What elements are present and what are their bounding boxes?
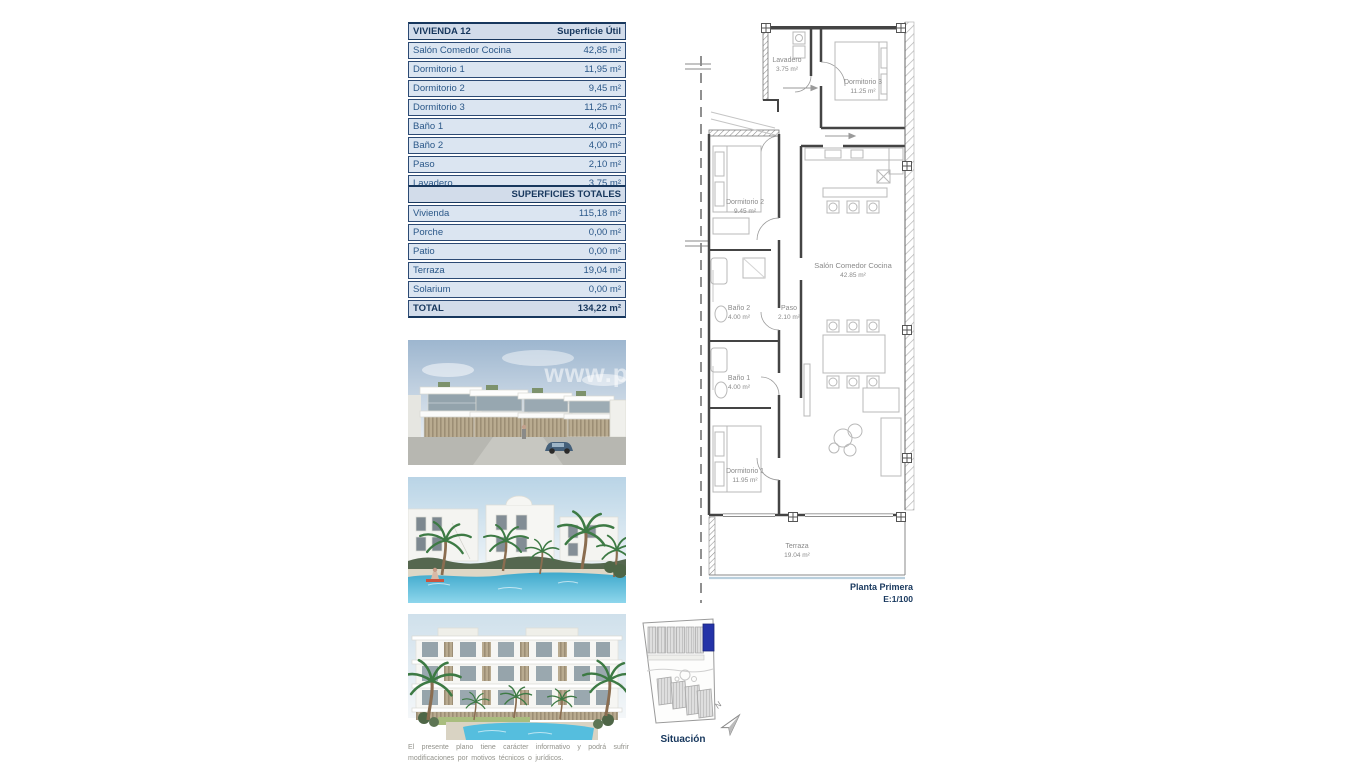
row-label: Dormitorio 1 — [408, 61, 538, 78]
room-label-dormitorio-2: Dormitorio 2 9.45 m² — [726, 199, 764, 215]
table-row: Baño 24,00 m² — [408, 137, 626, 154]
svg-text:E:1/100: E:1/100 — [883, 594, 913, 604]
row-value: 9,45 m² — [538, 80, 626, 97]
row-label: Salón Comedor Cocina — [408, 42, 538, 59]
svg-text:42.85 m²: 42.85 m² — [840, 272, 866, 279]
row-value: 0,00 m² — [511, 243, 626, 260]
exterior-render-photo-1: www.p — [408, 340, 626, 465]
floorplan-drawing: Lavadero 3.75 m² Dormitorio 3 11.25 m² D… — [683, 18, 919, 614]
svg-text:9.45 m²: 9.45 m² — [734, 208, 757, 215]
svg-text:Baño 1: Baño 1 — [728, 375, 750, 382]
svg-text:Dormitorio 3: Dormitorio 3 — [844, 79, 882, 86]
svg-text:19.04 m²: 19.04 m² — [784, 552, 810, 559]
disclaimer-text: El presente plano tiene carácter informa… — [408, 743, 629, 764]
table-row: Patio0,00 m² — [408, 243, 626, 260]
svg-text:Dormitorio 1: Dormitorio 1 — [726, 468, 764, 475]
vivienda-areas-table: VIVIENDA 12 Superficie Útil Salón Comedo… — [408, 20, 626, 194]
row-value: 4,00 m² — [538, 118, 626, 135]
row-value: 2,10 m² — [538, 156, 626, 173]
table-row: Dormitorio 111,95 m² — [408, 61, 626, 78]
svg-text:4.00 m²: 4.00 m² — [728, 314, 751, 321]
table-header-value: Superficie Útil — [538, 22, 626, 40]
row-value: 11,25 m² — [538, 99, 626, 116]
render-building-view — [408, 614, 626, 740]
svg-text:11.25 m²: 11.25 m² — [850, 88, 876, 95]
row-label: Baño 2 — [408, 137, 538, 154]
totales-table: SUPERFICIES TOTALES Vivienda115,18 m² Po… — [408, 183, 626, 320]
table-row: Dormitorio 29,45 m² — [408, 80, 626, 97]
exterior-render-photo-2 — [408, 477, 626, 603]
table-row: Terraza19,04 m² — [408, 262, 626, 279]
table-header-row: VIVIENDA 12 Superficie Útil — [408, 22, 626, 40]
row-value: 11,95 m² — [538, 61, 626, 78]
table-title: VIVIENDA 12 — [408, 22, 538, 40]
watermark-text: www.p — [543, 360, 626, 388]
room-label-bano-2: Baño 2 4.00 m² — [728, 305, 751, 321]
svg-text:Salón Comedor Cocina: Salón Comedor Cocina — [814, 261, 892, 270]
room-label-dormitorio-1: Dormitorio 1 11.95 m² — [726, 468, 764, 484]
table-row: Porche0,00 m² — [408, 224, 626, 241]
table-row: Solarium0,00 m² — [408, 281, 626, 298]
row-value: 0,00 m² — [511, 224, 626, 241]
total-label: TOTAL — [408, 300, 511, 318]
svg-text:Dormitorio 2: Dormitorio 2 — [726, 199, 764, 206]
row-label: Vivienda — [408, 205, 511, 222]
svg-text:4.00 m²: 4.00 m² — [728, 384, 751, 391]
table-header-row: SUPERFICIES TOTALES — [408, 185, 626, 203]
row-value: 4,00 m² — [538, 137, 626, 154]
svg-text:Baño 2: Baño 2 — [728, 305, 750, 312]
render-street-view: www.p — [408, 340, 626, 465]
table-row: Dormitorio 311,25 m² — [408, 99, 626, 116]
render-pool-view — [408, 477, 626, 603]
wall-junction-markers — [762, 24, 912, 522]
site-location-plan: N Situación — [633, 615, 747, 749]
floorplan-caption: Planta Primera E:1/100 — [850, 582, 914, 604]
row-label: Dormitorio 3 — [408, 99, 538, 116]
svg-text:11.95 m²: 11.95 m² — [732, 477, 758, 484]
row-label: Terraza — [408, 262, 511, 279]
row-value: 115,18 m² — [511, 205, 626, 222]
row-label: Dormitorio 2 — [408, 80, 538, 97]
table-row: Salón Comedor Cocina42,85 m² — [408, 42, 626, 59]
row-value: 0,00 m² — [511, 281, 626, 298]
svg-text:3.75 m²: 3.75 m² — [776, 66, 799, 73]
row-label: Solarium — [408, 281, 511, 298]
table-row: Vivienda115,18 m² — [408, 205, 626, 222]
person-silhouette — [522, 425, 526, 439]
svg-text:Terraza: Terraza — [785, 543, 808, 550]
total-value: 134,22 m² — [511, 300, 626, 318]
room-label-terraza: Terraza 19.04 m² — [784, 543, 810, 559]
table-row: Baño 14,00 m² — [408, 118, 626, 135]
total-row: TOTAL134,22 m² — [408, 300, 626, 318]
row-value: 42,85 m² — [538, 42, 626, 59]
room-label-dormitorio-3: Dormitorio 3 11.25 m² — [844, 79, 882, 95]
row-label: Patio — [408, 243, 511, 260]
exterior-render-photo-3 — [408, 614, 626, 740]
row-label: Porche — [408, 224, 511, 241]
site-plan-label: Situación — [660, 734, 705, 745]
svg-text:2.10 m²: 2.10 m² — [778, 314, 801, 321]
brochure-page: VIVIENDA 12 Superficie Útil Salón Comedo… — [0, 0, 1366, 768]
row-value: 19,04 m² — [511, 262, 626, 279]
north-arrow-icon: N — [713, 700, 744, 735]
room-label-paso: Paso 2.10 m² — [778, 305, 801, 321]
table-row: Paso2,10 m² — [408, 156, 626, 173]
room-label-salon-comedor-cocina: Salón Comedor Cocina 42.85 m² — [814, 261, 892, 279]
room-label-bano-1: Baño 1 4.00 m² — [728, 375, 751, 391]
row-label: Paso — [408, 156, 538, 173]
highlighted-unit-marker — [703, 624, 714, 651]
room-label-lavadero: Lavadero 3.75 m² — [772, 57, 801, 73]
svg-text:Paso: Paso — [781, 305, 797, 312]
row-label: Baño 1 — [408, 118, 538, 135]
svg-text:Lavadero: Lavadero — [772, 57, 801, 64]
svg-text:Planta Primera: Planta Primera — [850, 582, 914, 592]
table-title: SUPERFICIES TOTALES — [408, 185, 626, 203]
